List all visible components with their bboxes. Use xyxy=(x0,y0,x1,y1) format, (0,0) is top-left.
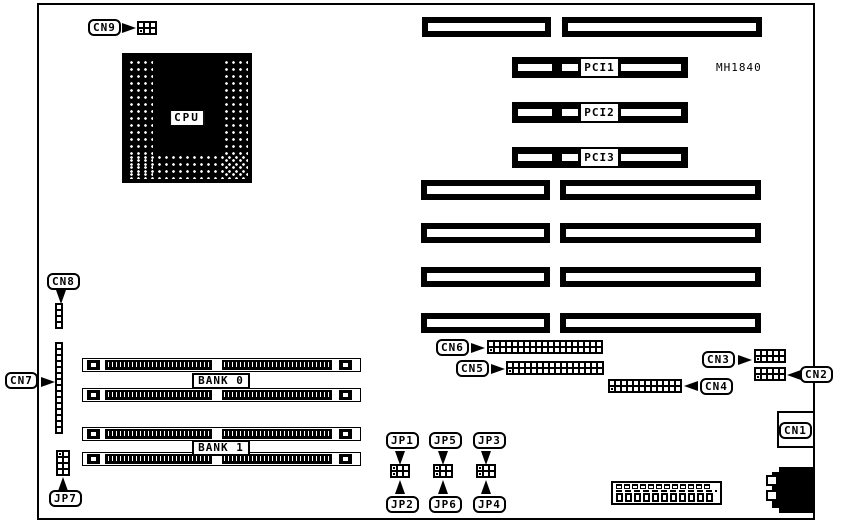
keyboard-connector-tab xyxy=(766,490,778,501)
pci-slot-segment xyxy=(621,154,681,161)
cpu-pin-field-right xyxy=(221,57,248,179)
simm-key-gap xyxy=(212,428,222,440)
isa-slot xyxy=(421,180,550,200)
cn3-label: CN3 xyxy=(702,351,735,368)
pci-slot-segment xyxy=(562,154,578,161)
isa-slot xyxy=(421,267,550,287)
pci-slot-segment xyxy=(562,109,578,116)
jp6-pointer xyxy=(438,480,448,494)
isa-slot xyxy=(560,313,761,333)
cn5-pointer xyxy=(491,364,505,374)
simm-latch-left xyxy=(83,359,105,371)
cn8-label: CN8 xyxy=(47,273,80,290)
pci-slot-3: PCI3 xyxy=(512,147,688,168)
simm-latch-right xyxy=(332,359,360,371)
simm-latch-left xyxy=(83,428,105,440)
simm-latch-left xyxy=(83,389,105,401)
isa-slot xyxy=(560,180,761,200)
pci-slot-1: PCI1 xyxy=(512,57,688,78)
pci-slot-2: PCI2 xyxy=(512,102,688,123)
jp1-jp2-jumper-block xyxy=(390,464,410,478)
simm-key-gap xyxy=(212,389,222,401)
board-model-text: MH1840 xyxy=(716,61,762,74)
jp5-pointer xyxy=(438,451,448,465)
pci-slot-segment xyxy=(562,64,578,71)
cn4-label: CN4 xyxy=(700,378,733,395)
keyboard-connector xyxy=(779,467,815,513)
jp3-jp4-jumper-block xyxy=(476,464,496,478)
jp5-jp6-jumper-block xyxy=(433,464,453,478)
cn3-connector xyxy=(754,349,786,363)
keyboard-connector-tab xyxy=(766,475,778,486)
jp4-pointer xyxy=(481,480,491,494)
cn9-label: CN9 xyxy=(88,19,121,36)
cn6-connector xyxy=(487,340,603,354)
cn2-connector xyxy=(754,367,786,381)
cn7-pointer xyxy=(41,377,55,387)
motherboard-diagram: CN9 CPU PCI1 PCI2 PCI3 MH1840 CN8 xyxy=(0,0,842,527)
jp1-label: JP1 xyxy=(386,432,419,449)
simm-slot xyxy=(82,427,361,441)
cn1-label: CN1 xyxy=(779,422,812,439)
cn8-pointer xyxy=(56,290,66,304)
cn4-pointer xyxy=(684,381,698,391)
simm-latch-right xyxy=(332,428,360,440)
cpu-pin-field-left xyxy=(126,57,153,179)
pci-slot-segment xyxy=(518,64,552,71)
jp2-label: JP2 xyxy=(386,496,419,513)
jp4-label: JP4 xyxy=(473,496,506,513)
cn5-label: CN5 xyxy=(456,360,489,377)
simm-pin-bar xyxy=(105,429,332,439)
jp3-label: JP3 xyxy=(473,432,506,449)
jp5-label: JP5 xyxy=(429,432,462,449)
cn5-connector xyxy=(506,361,604,375)
cn2-label: CN2 xyxy=(800,366,833,383)
jp3-pointer xyxy=(481,451,491,465)
jp7-label: JP7 xyxy=(49,490,82,507)
cpu-socket: CPU xyxy=(122,53,252,183)
simm-latch-left xyxy=(83,453,105,465)
isa-slot xyxy=(560,223,761,243)
cn4-connector xyxy=(608,379,682,393)
pci-slot-segment xyxy=(518,109,552,116)
jp6-label: JP6 xyxy=(429,496,462,513)
cn6-pointer xyxy=(471,343,485,353)
cn9-pointer xyxy=(122,23,136,33)
bank0-label: BANK 0 xyxy=(192,373,250,389)
isa-slot xyxy=(560,267,761,287)
simm-pin-bar xyxy=(105,390,332,400)
power-connector xyxy=(611,481,722,505)
pci-slot-segment xyxy=(518,154,552,161)
cn7-label: CN7 xyxy=(5,372,38,389)
bank1-label: BANK 1 xyxy=(192,440,250,456)
cn2-pointer xyxy=(787,370,801,380)
cn8-connector xyxy=(55,303,63,329)
simm-pin-bar xyxy=(105,360,332,370)
cn9-connector xyxy=(137,21,157,35)
pci1-label: PCI1 xyxy=(580,58,619,77)
cn6-label: CN6 xyxy=(436,339,469,356)
jp2-pointer xyxy=(395,480,405,494)
cpu-label: CPU xyxy=(170,110,204,126)
jp7-connector xyxy=(56,450,70,476)
simm-slot xyxy=(82,388,361,402)
power-pin-row xyxy=(613,483,720,490)
isa-slot xyxy=(562,17,762,37)
simm-latch-right xyxy=(332,389,360,401)
pci-slot-segment xyxy=(621,109,681,116)
pci-slot-segment xyxy=(621,64,681,71)
simm-latch-right xyxy=(332,453,360,465)
pci2-label: PCI2 xyxy=(580,103,619,122)
isa-slot xyxy=(422,17,551,37)
pci3-label: PCI3 xyxy=(580,148,619,167)
simm-slot xyxy=(82,358,361,372)
jp7-pointer xyxy=(58,477,68,491)
isa-slot xyxy=(421,223,550,243)
simm-key-gap xyxy=(212,359,222,371)
isa-slot xyxy=(421,313,550,333)
cn3-pointer xyxy=(738,355,752,365)
cn7-connector xyxy=(55,342,63,434)
power-socket-row xyxy=(613,492,720,503)
jp1-pointer xyxy=(395,451,405,465)
